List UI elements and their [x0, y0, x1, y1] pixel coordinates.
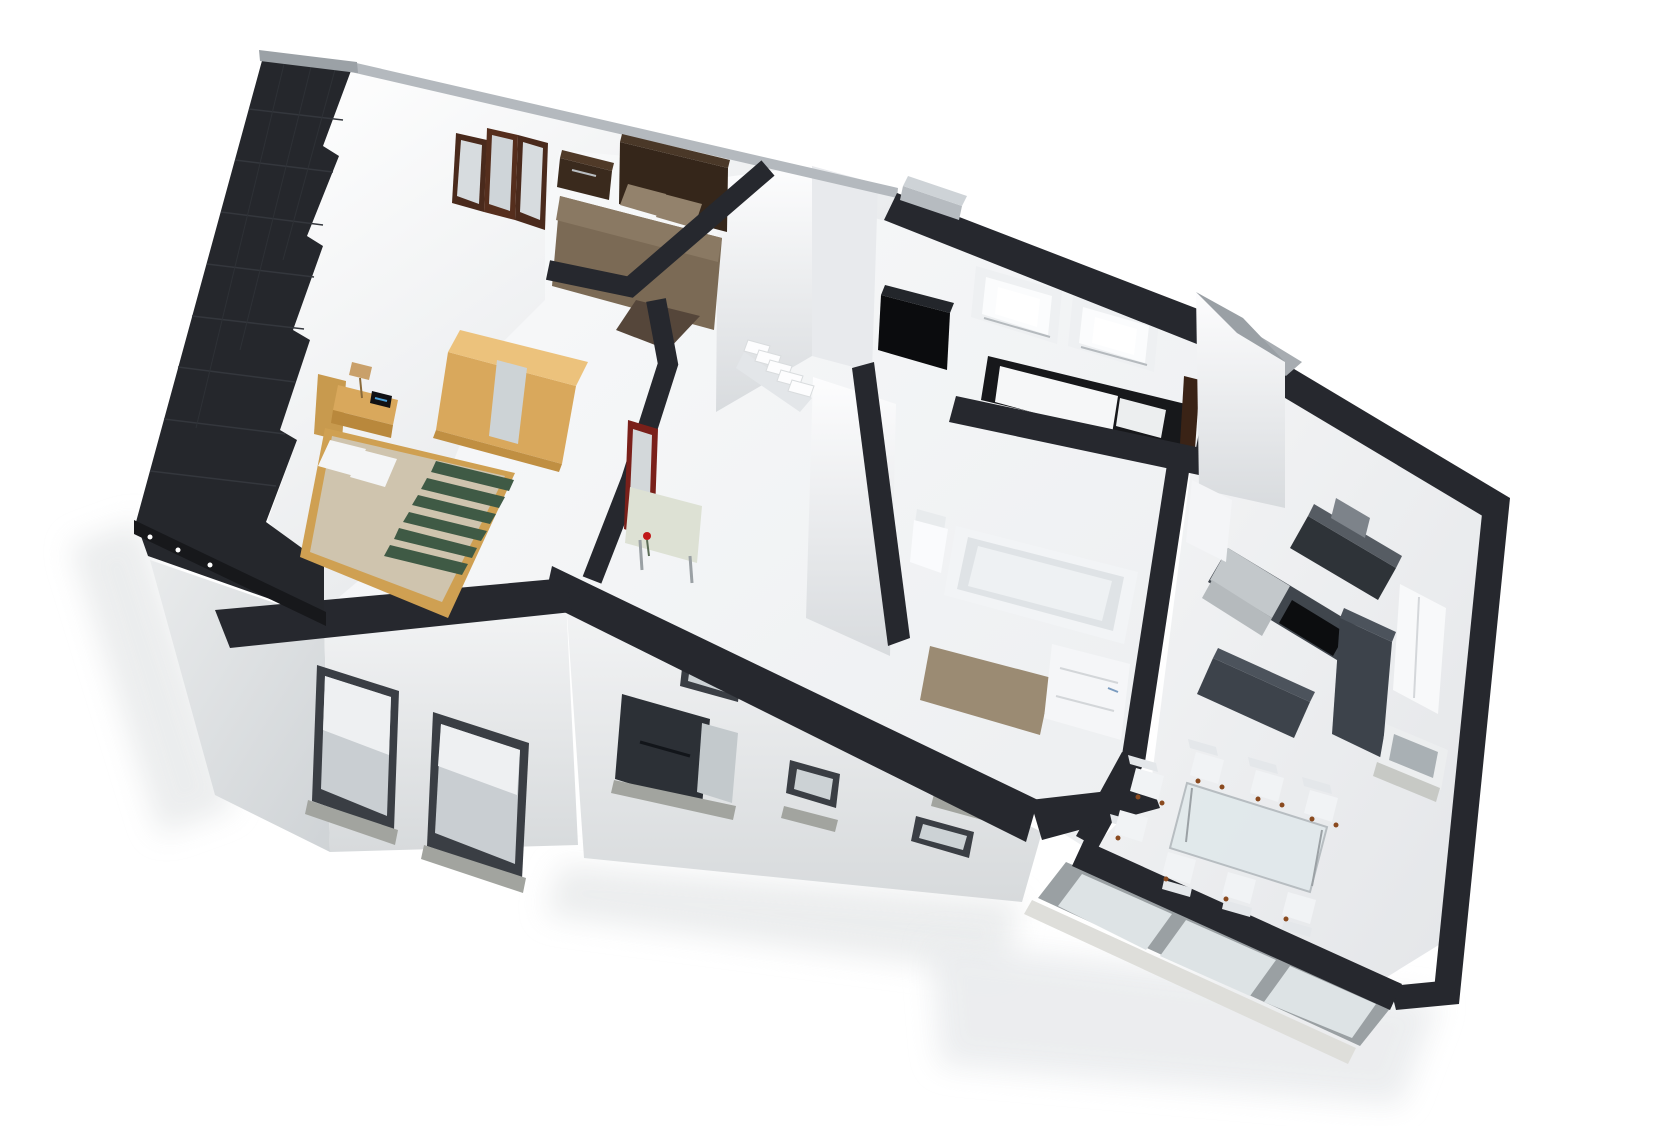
- chair-leg-dot-9: [1164, 877, 1169, 882]
- chair-leg-dot-4: [1220, 785, 1225, 790]
- stairwell-wall-side: [812, 166, 878, 372]
- chair-leg-dot-12: [1116, 836, 1121, 841]
- console-table-leg-1: [640, 540, 642, 570]
- chair-leg-dot-2: [1160, 801, 1165, 806]
- front-door-sidelight: [697, 723, 738, 803]
- scene-root: [70, 50, 1510, 1105]
- chair-leg-dot-3: [1196, 779, 1201, 784]
- trifold-mirror-glass-1: [457, 140, 482, 204]
- trifold-mirror-glass-2: [489, 135, 513, 211]
- chair-leg-dot-11: [1284, 917, 1289, 922]
- rose-flower: [643, 532, 651, 540]
- chair-leg-dot-7: [1310, 817, 1315, 822]
- eave-gutter-dot-3: [208, 563, 213, 568]
- eave-gutter-dot-1: [148, 535, 153, 540]
- console-table-leg-2: [690, 556, 692, 583]
- island-counter-b: [1332, 618, 1392, 758]
- chair-leg-dot-10: [1224, 897, 1229, 902]
- chair-leg-dot-8: [1334, 823, 1339, 828]
- floorplan-scene: [0, 0, 1660, 1126]
- chair-leg-dot-1: [1136, 795, 1141, 800]
- eave-gutter-dot-2: [176, 548, 181, 553]
- chair-leg-dot-6: [1280, 803, 1285, 808]
- trifold-mirror-glass-3: [520, 142, 543, 220]
- chair-leg-dot-5: [1256, 797, 1261, 802]
- floorplan-3d-render: [0, 0, 1660, 1126]
